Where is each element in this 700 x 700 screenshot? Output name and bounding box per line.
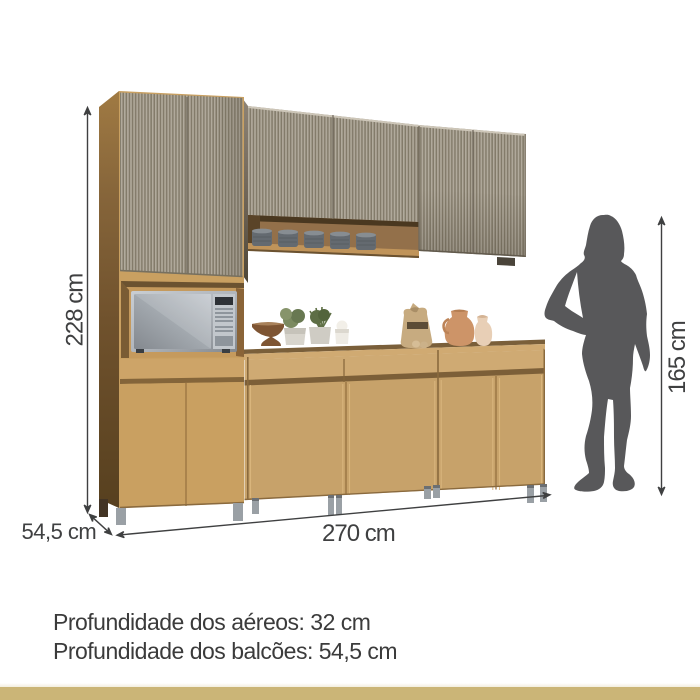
svg-text:228 cm: 228 cm xyxy=(62,274,89,347)
svg-text:270 cm: 270 cm xyxy=(322,520,395,547)
svg-text:54,5 cm: 54,5 cm xyxy=(22,519,97,544)
svg-text:Profundidade dos balcões: 54,5: Profundidade dos balcões: 54,5 cm xyxy=(53,638,397,664)
svg-text:165 cm: 165 cm xyxy=(664,321,691,394)
svg-text:Profundidade dos aéreos: 32 cm: Profundidade dos aéreos: 32 cm xyxy=(53,609,370,635)
